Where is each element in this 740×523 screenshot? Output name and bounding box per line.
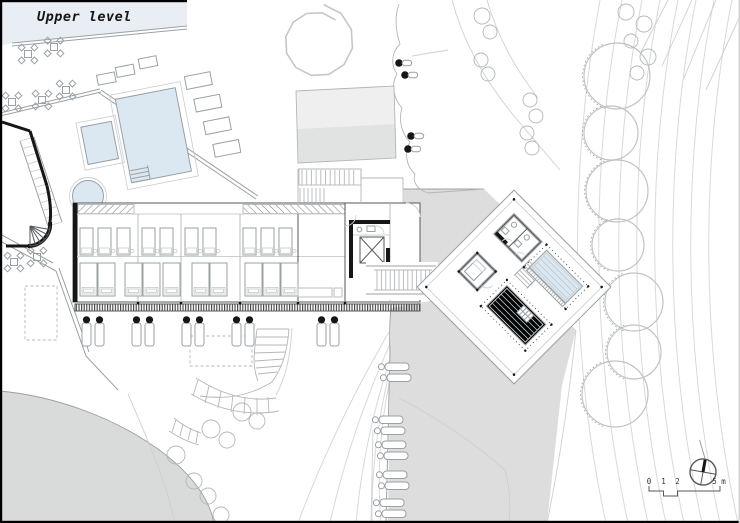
bollard-light-icon bbox=[404, 145, 421, 153]
sun-lounger bbox=[378, 363, 409, 371]
sun-lounger bbox=[82, 316, 91, 346]
bed bbox=[245, 263, 262, 296]
scale-label-0: 0 bbox=[647, 477, 652, 486]
sun-lounger bbox=[376, 471, 407, 479]
sun-lounger bbox=[375, 441, 406, 449]
scale-label-1: 1 bbox=[661, 477, 666, 486]
bollard-light-icon bbox=[401, 71, 418, 79]
sun-lounger bbox=[378, 482, 409, 490]
sun-lounger bbox=[317, 316, 326, 346]
sun-lounger bbox=[377, 452, 408, 460]
louver-strip-east bbox=[243, 205, 345, 214]
sun-lounger bbox=[375, 510, 406, 518]
bed bbox=[163, 263, 180, 296]
scale-label-2: 2 bbox=[675, 477, 680, 486]
plan-title: Upper level bbox=[37, 9, 132, 25]
bed bbox=[192, 263, 209, 296]
scale-label-5m: 5 m bbox=[712, 477, 726, 486]
louver-strip-west bbox=[78, 205, 134, 214]
bed bbox=[125, 263, 142, 296]
site-plan: 0 1 2 5 m Upper level bbox=[0, 0, 740, 523]
sun-lounger bbox=[132, 316, 141, 346]
bed bbox=[80, 263, 97, 296]
sun-lounger bbox=[372, 416, 403, 424]
sun-lounger bbox=[232, 316, 241, 346]
sun-lounger bbox=[95, 316, 104, 346]
sun-lounger bbox=[182, 316, 191, 346]
sun-lounger bbox=[195, 316, 204, 346]
bed bbox=[281, 263, 298, 296]
sun-lounger bbox=[245, 316, 254, 346]
plan-drawing: 0 1 2 5 m Upper level bbox=[0, 0, 740, 523]
bed bbox=[143, 263, 160, 296]
sun-lounger bbox=[373, 499, 404, 507]
service-roof bbox=[296, 86, 396, 163]
bed bbox=[98, 263, 115, 296]
sun-lounger bbox=[330, 316, 339, 346]
bollard-light-icon bbox=[407, 132, 424, 140]
bed bbox=[263, 263, 280, 296]
bed bbox=[210, 263, 227, 296]
sun-lounger bbox=[145, 316, 154, 346]
end-wall bbox=[73, 203, 78, 302]
promenade-deck bbox=[75, 304, 420, 311]
sun-lounger bbox=[374, 427, 405, 435]
bollard-light-icon bbox=[395, 59, 412, 67]
sun-lounger bbox=[380, 374, 411, 382]
